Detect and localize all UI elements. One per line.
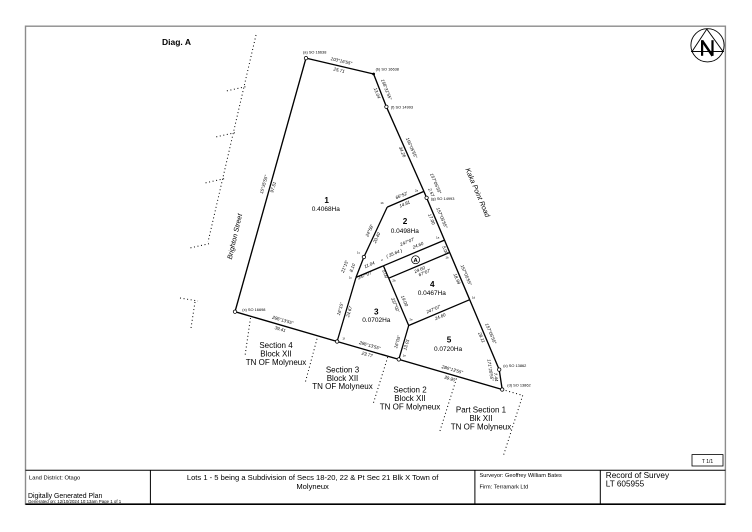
svg-text:0.0720Ha: 0.0720Ha <box>434 346 463 353</box>
svg-text:2b: 2b <box>392 279 396 283</box>
svg-text:Land District: Otago: Land District: Otago <box>29 475 80 481</box>
svg-text:LT 605955: LT 605955 <box>606 480 645 489</box>
svg-text:TN OF Molyneux: TN OF Molyneux <box>246 358 306 367</box>
svg-text:1b: 1b <box>380 201 384 205</box>
svg-text:(a) SO 16638: (a) SO 16638 <box>303 49 326 54</box>
svg-text:0.0702Ha: 0.0702Ha <box>362 317 391 324</box>
svg-text:(d) SO 13862: (d) SO 13862 <box>507 382 530 387</box>
svg-text:2a: 2a <box>415 189 419 193</box>
svg-text:1a: 1a <box>436 236 440 240</box>
svg-text:4: 4 <box>430 280 435 289</box>
svg-text:0.4068Ha: 0.4068Ha <box>312 206 341 213</box>
svg-text:1d: 1d <box>472 295 476 299</box>
svg-text:1: 1 <box>324 196 329 205</box>
svg-text:1e: 1e <box>403 354 407 358</box>
svg-text:(g) SO 14993: (g) SO 14993 <box>431 196 454 201</box>
svg-text:0.0498Ha: 0.0498Ha <box>391 228 420 235</box>
svg-text:Molyneux: Molyneux <box>296 482 329 491</box>
svg-text:Firm: Terramark Ltd: Firm: Terramark Ltd <box>480 484 529 490</box>
svg-text:(b) SO 16638: (b) SO 16638 <box>376 66 399 71</box>
svg-text:(f) SO 14993: (f) SO 14993 <box>391 104 413 109</box>
svg-text:0.0467Ha: 0.0467Ha <box>418 290 447 297</box>
svg-text:TN OF Molyneux: TN OF Molyneux <box>312 382 372 391</box>
svg-text:TN OF Molyneux: TN OF Molyneux <box>451 422 511 431</box>
svg-text:Generated on: 12/10/2024 10:13: Generated on: 12/10/2024 10:13am Page 1 … <box>28 499 122 504</box>
svg-text:1c: 1c <box>357 251 361 255</box>
svg-text:Surveyor: Geoffrey William Bat: Surveyor: Geoffrey William Bates <box>480 473 562 479</box>
svg-text:3: 3 <box>374 307 379 316</box>
svg-text:Lots 1 - 5 being a Subdivision: Lots 1 - 5 being a Subdivision of Secs 1… <box>187 473 439 482</box>
svg-text:2e: 2e <box>409 318 413 322</box>
svg-text:2: 2 <box>403 217 408 226</box>
svg-text:TN OF Molyneux: TN OF Molyneux <box>380 403 440 412</box>
svg-text:1f: 1f <box>342 337 345 341</box>
svg-text:(x) SO 16698: (x) SO 16698 <box>242 307 265 312</box>
svg-text:(c) SO 13862: (c) SO 13862 <box>503 363 526 368</box>
svg-text:T 1/1: T 1/1 <box>702 459 714 465</box>
svg-text:1b: 1b <box>445 256 449 260</box>
svg-text:5: 5 <box>447 335 452 344</box>
svg-text:1c: 1c <box>349 276 353 280</box>
svg-text:Diag. A: Diag. A <box>162 37 191 47</box>
